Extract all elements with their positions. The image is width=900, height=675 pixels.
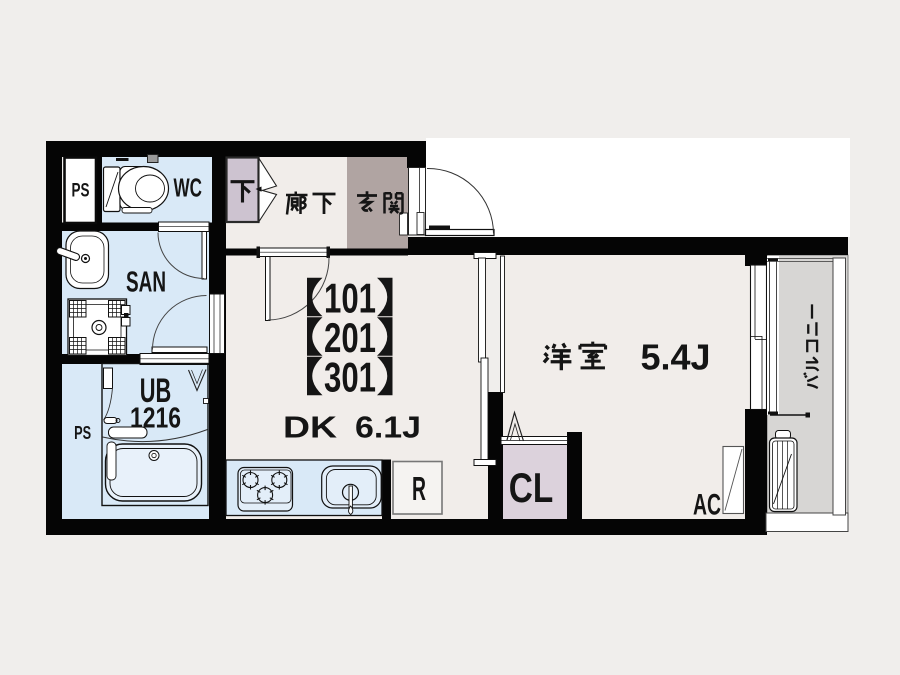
svg-text:301: 301 — [324, 353, 376, 400]
svg-text:PS: PS — [74, 422, 91, 443]
svg-text:R: R — [412, 470, 426, 507]
svg-text:1216: 1216 — [130, 403, 181, 435]
svg-text:PS: PS — [72, 181, 90, 202]
svg-text:6.1J: 6.1J — [355, 410, 421, 445]
svg-text:SAN: SAN — [126, 267, 166, 299]
svg-text:CL: CL — [509, 464, 554, 511]
svg-text:WC: WC — [173, 173, 202, 203]
svg-text:5.4J: 5.4J — [641, 337, 711, 378]
svg-text:AC: AC — [693, 489, 721, 522]
svg-text:DK: DK — [283, 410, 338, 445]
